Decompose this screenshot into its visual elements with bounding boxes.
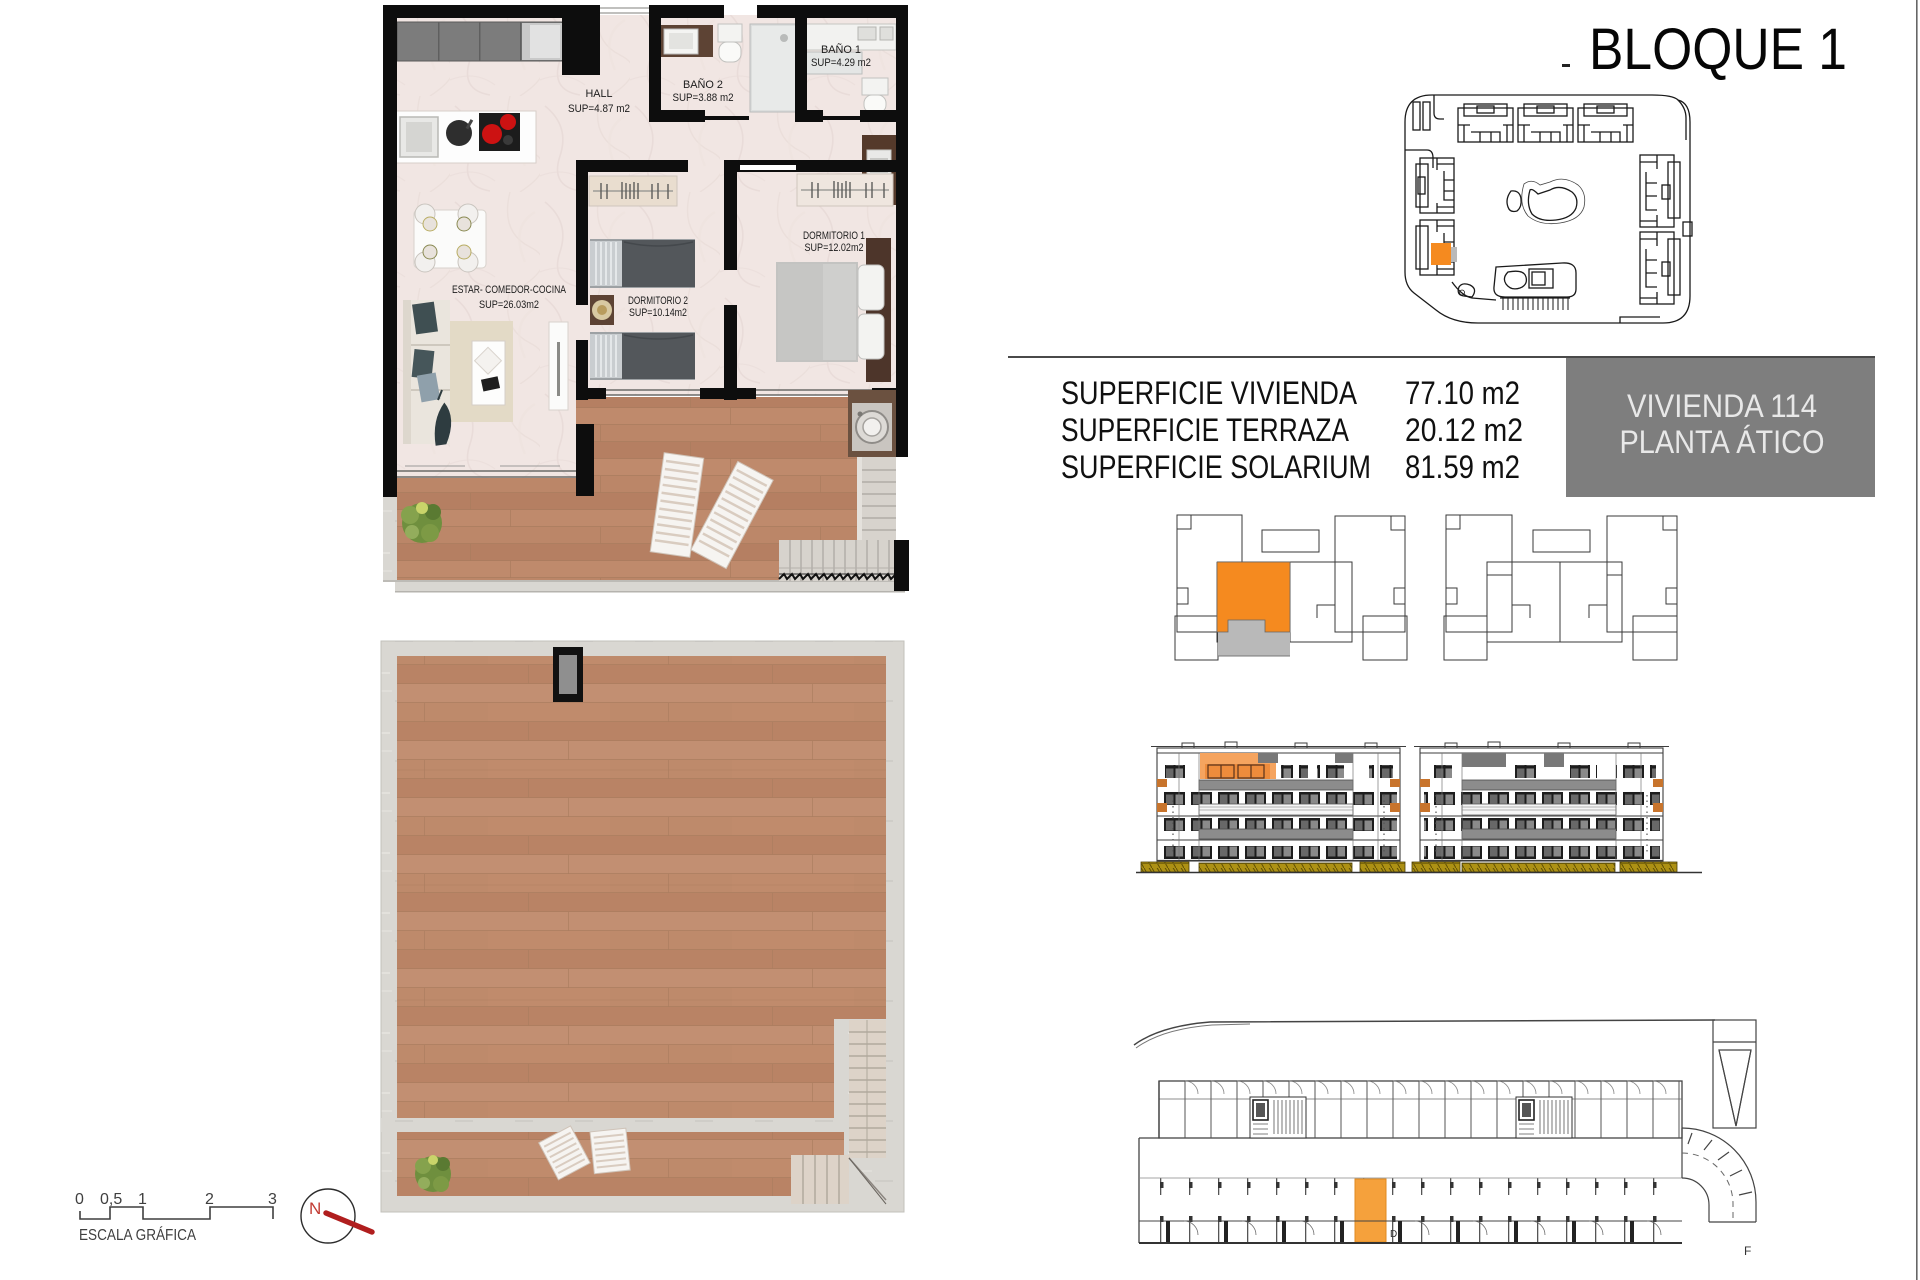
svg-text:BLOQUE 1: BLOQUE 1 <box>1589 17 1847 82</box>
svg-text:ESCALA GRÁFICA: ESCALA GRÁFICA <box>79 1227 197 1244</box>
svg-text:HALL: HALL <box>586 88 613 100</box>
svg-text:D: D <box>1390 1229 1397 1240</box>
svg-text:0: 0 <box>75 1191 84 1208</box>
svg-text:SUP=12.02m2: SUP=12.02m2 <box>805 242 864 254</box>
svg-text:SUP=4.29 m2: SUP=4.29 m2 <box>811 57 871 69</box>
svg-text:SUP=4.87 m2: SUP=4.87 m2 <box>568 103 630 115</box>
svg-text:DORMITORIO 1: DORMITORIO 1 <box>803 230 865 242</box>
svg-text:77.10 m2: 77.10 m2 <box>1405 375 1520 411</box>
svg-text:81.59 m2: 81.59 m2 <box>1405 449 1520 485</box>
svg-text:SUPERFICIE TERRAZA: SUPERFICIE TERRAZA <box>1061 412 1350 448</box>
svg-text:20.12 m2: 20.12 m2 <box>1405 412 1523 448</box>
svg-text:DORMITORIO 2: DORMITORIO 2 <box>628 295 688 307</box>
svg-text:1: 1 <box>138 1191 147 1208</box>
svg-text:ESTAR- COMEDOR-COCINA: ESTAR- COMEDOR-COCINA <box>452 284 567 296</box>
svg-text:SUPERFICIE VIVIENDA: SUPERFICIE VIVIENDA <box>1061 375 1358 411</box>
svg-text:BAÑO 2: BAÑO 2 <box>683 78 723 91</box>
svg-text:VIVIENDA 114: VIVIENDA 114 <box>1627 388 1817 424</box>
svg-text:2: 2 <box>205 1191 214 1208</box>
svg-text:SUP=10.14m2: SUP=10.14m2 <box>629 307 687 319</box>
svg-text:3: 3 <box>268 1191 277 1208</box>
svg-text:BAÑO 1: BAÑO 1 <box>821 43 861 56</box>
svg-text:0,5: 0,5 <box>100 1191 122 1208</box>
svg-text:SUPERFICIE SOLARIUM: SUPERFICIE SOLARIUM <box>1061 449 1371 485</box>
svg-text:PLANTA ÁTICO: PLANTA ÁTICO <box>1620 424 1825 460</box>
svg-text:N: N <box>309 1199 321 1218</box>
svg-text:F: F <box>1744 1244 1751 1258</box>
svg-text:SUP=3.88 m2: SUP=3.88 m2 <box>673 92 734 104</box>
svg-text:SUP=26.03m2: SUP=26.03m2 <box>479 299 539 311</box>
